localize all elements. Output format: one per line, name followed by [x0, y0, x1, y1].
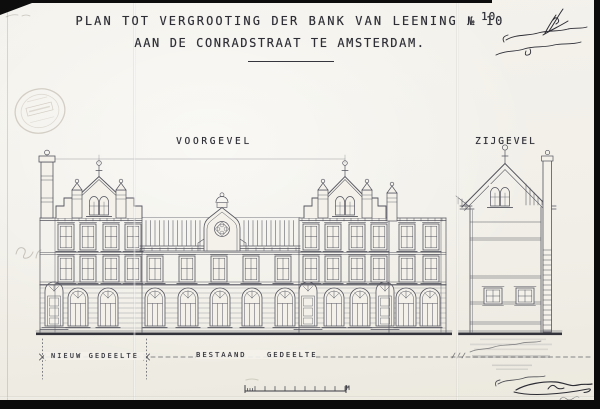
scan-edge-top	[0, 0, 492, 3]
left-gable	[56, 161, 142, 218]
approval-stamp-block	[470, 339, 552, 370]
new-section-label: NIEUW GEDEELTE	[44, 352, 146, 360]
side-elevation-label: ZIJGEVEL	[458, 136, 554, 147]
left-chimney	[39, 150, 55, 218]
zijgevel-drawing	[456, 145, 562, 335]
scan-corner-cut	[0, 0, 40, 15]
pencil-notes	[6, 15, 41, 258]
sheet-number: 10	[481, 10, 507, 23]
scanned-drawing-sheet: PLAN TOT VERGROOTING DER BANK VAN LEENIN…	[0, 0, 600, 409]
scan-edge-right	[594, 0, 600, 409]
right-gable	[304, 161, 386, 218]
fold-crease-bottom	[0, 396, 600, 398]
voorgevel-drawing	[36, 150, 452, 335]
scale-bar	[245, 379, 346, 393]
paper-edge-line	[7, 0, 8, 409]
existing-section-label: BESTAAND GEDEELTE	[196, 350, 316, 359]
central-dormer	[198, 193, 246, 251]
fold-crease-left	[133, 0, 136, 409]
scale-unit-label: M	[346, 385, 360, 392]
scan-edge-bottom	[0, 400, 600, 409]
drawing-title-line2: AAN DE CONRADSTRAAT TE AMSTERDAM.	[110, 36, 450, 50]
fold-crease-right	[456, 0, 459, 409]
archive-stamp-oval	[10, 84, 69, 139]
title-underline	[248, 61, 334, 62]
front-elevation-label: VOORGEVEL	[158, 136, 270, 147]
drawing-title-line1: PLAN TOT VERGROOTING DER BANK VAN LEENIN…	[70, 14, 510, 28]
